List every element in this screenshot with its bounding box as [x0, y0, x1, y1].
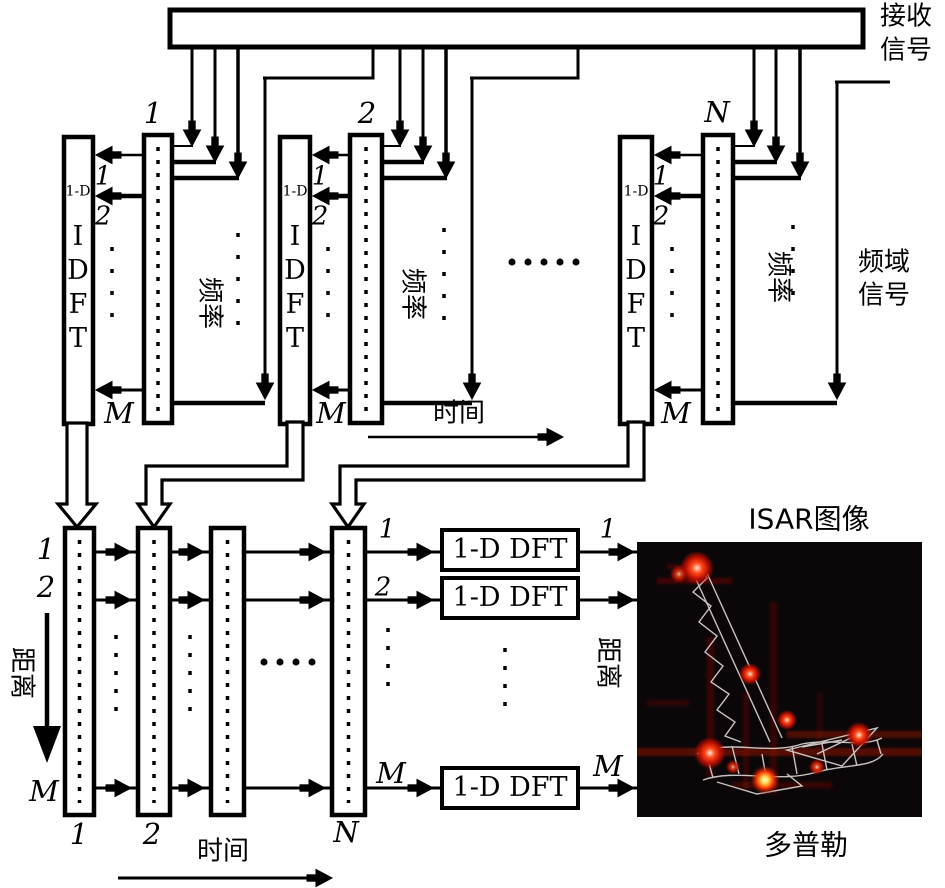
isar-sidelobe-streaks: [637, 564, 922, 794]
between-groups-dots: [509, 259, 580, 266]
hollow-arrow-2: [138, 422, 303, 527]
range-label-right: 距离: [593, 637, 620, 689]
idft-2-prefix: 1-D: [283, 185, 308, 200]
bottom-columns: [65, 528, 365, 815]
freq-domain-label-line2: 信号: [858, 282, 910, 309]
coln-out-row1: 1: [379, 516, 396, 543]
time-label-top: 时间: [433, 400, 485, 427]
freq-domain-label-line1: 频域: [858, 249, 910, 276]
doppler-label: 多普勒: [764, 830, 848, 859]
top-column-2-number: 2: [358, 98, 376, 128]
time-label-bottom: 时间: [197, 838, 249, 865]
idft-1-prefix: 1-D: [66, 185, 91, 200]
bus-feeds-group-1: [172, 47, 375, 403]
bottom-column-n-number: N: [333, 817, 358, 847]
isar-image-title: ISAR图像: [748, 504, 869, 533]
dft-out-rowM: M: [593, 751, 623, 781]
hollow-arrow-1: [58, 423, 96, 527]
bottom-row2-label: 2: [37, 572, 55, 602]
bottom-ellipsis-dots: [116, 628, 505, 722]
idft-n-row1: 1: [653, 163, 670, 190]
idft-1-row2: 2: [95, 203, 112, 230]
bottom-rowM-label: M: [29, 776, 59, 806]
received-signal-bus: [170, 10, 863, 47]
frequency-label-2: 频率: [398, 268, 425, 320]
idft-1-row1: 1: [95, 163, 112, 190]
range-label-left: 距离: [7, 647, 34, 699]
bottom-column-2-number: 2: [143, 819, 161, 849]
frequency-label-n: 频率: [764, 251, 791, 303]
bottom-horizontal-dots: [261, 659, 316, 666]
idft-n-prefix: 1-D: [624, 185, 649, 200]
dft-boxes: [442, 530, 578, 808]
idft-2-rowM: M: [316, 398, 346, 428]
frequency-label-1: 频率: [195, 277, 222, 329]
idft-n-row2: 2: [653, 203, 670, 230]
top-column-1-number: 1: [144, 98, 162, 128]
idft-2-row2: 2: [312, 203, 329, 230]
bus-label-line1: 接收: [880, 3, 932, 30]
bottom-column-1-number: 1: [70, 819, 88, 849]
range-axis-arrow: [33, 613, 61, 763]
top-column-n-number: N: [704, 97, 729, 127]
coln-out-row2: 2: [375, 574, 392, 601]
idft-1-rowM: M: [104, 398, 134, 428]
dft-box-2-label: 1-D DFT: [453, 584, 568, 612]
dft-box-1-label: 1-D DFT: [453, 536, 568, 564]
idft-1-label: I D F T: [67, 220, 89, 356]
isar-image-content: [637, 542, 922, 817]
dft-box-m-label: 1-D DFT: [453, 774, 568, 802]
time-axis-arrow-top: [368, 429, 563, 446]
idft-2-label: I D F T: [284, 220, 306, 356]
dft-out-row1: 1: [600, 516, 617, 543]
idft-n-rowM: M: [661, 398, 691, 428]
time-axis-arrow-bottom: [118, 870, 332, 887]
coln-out-rowM: M: [376, 758, 406, 788]
idft-n-label: I D F T: [625, 220, 647, 356]
bottom-row1-label: 1: [37, 534, 55, 564]
bus-label-line2: 信号: [880, 37, 932, 64]
bus-feeds-group-n: [733, 47, 890, 403]
isar-image: [637, 542, 922, 817]
isar-processing-diagram: 接收 信号 1 1-D I D F T 1 2 M 频率 2 1-D I D F…: [0, 0, 945, 888]
bus-feeds-group-2: [382, 47, 580, 403]
idft-2-row1: 1: [312, 163, 329, 190]
